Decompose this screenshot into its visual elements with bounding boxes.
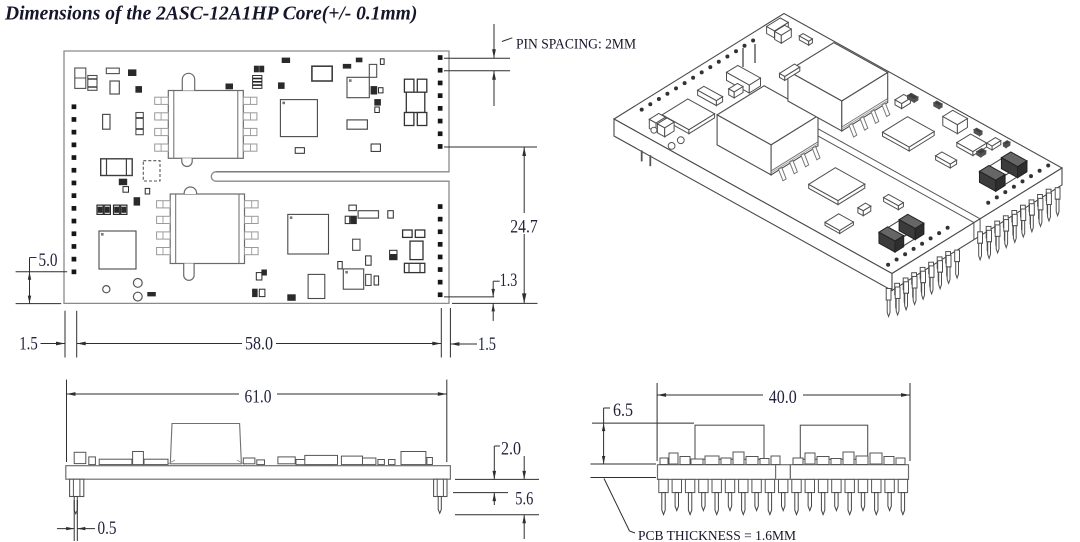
svg-text:1.5: 1.5 <box>19 334 38 355</box>
svg-text:40.0: 40.0 <box>769 387 797 408</box>
svg-text:Dimensions of the 2ASC-12A1HP: Dimensions of the 2ASC-12A1HP Core(+/- 0… <box>4 4 417 25</box>
svg-text:1.5: 1.5 <box>478 334 496 355</box>
svg-text:6.5: 6.5 <box>613 400 633 421</box>
svg-text:1.3: 1.3 <box>500 270 518 291</box>
svg-text:0.5: 0.5 <box>98 518 117 539</box>
svg-text:5.0: 5.0 <box>39 250 58 271</box>
svg-text:5.6: 5.6 <box>515 489 533 510</box>
svg-text:61.0: 61.0 <box>245 387 272 408</box>
svg-text:58.0: 58.0 <box>245 334 273 355</box>
svg-text:24.7: 24.7 <box>510 216 538 237</box>
svg-text:2.0: 2.0 <box>501 439 521 460</box>
svg-text:PCB THICKNESS = 1.6MM: PCB THICKNESS = 1.6MM <box>638 529 797 542</box>
svg-text:PIN SPACING: 2MM: PIN SPACING: 2MM <box>516 37 636 53</box>
